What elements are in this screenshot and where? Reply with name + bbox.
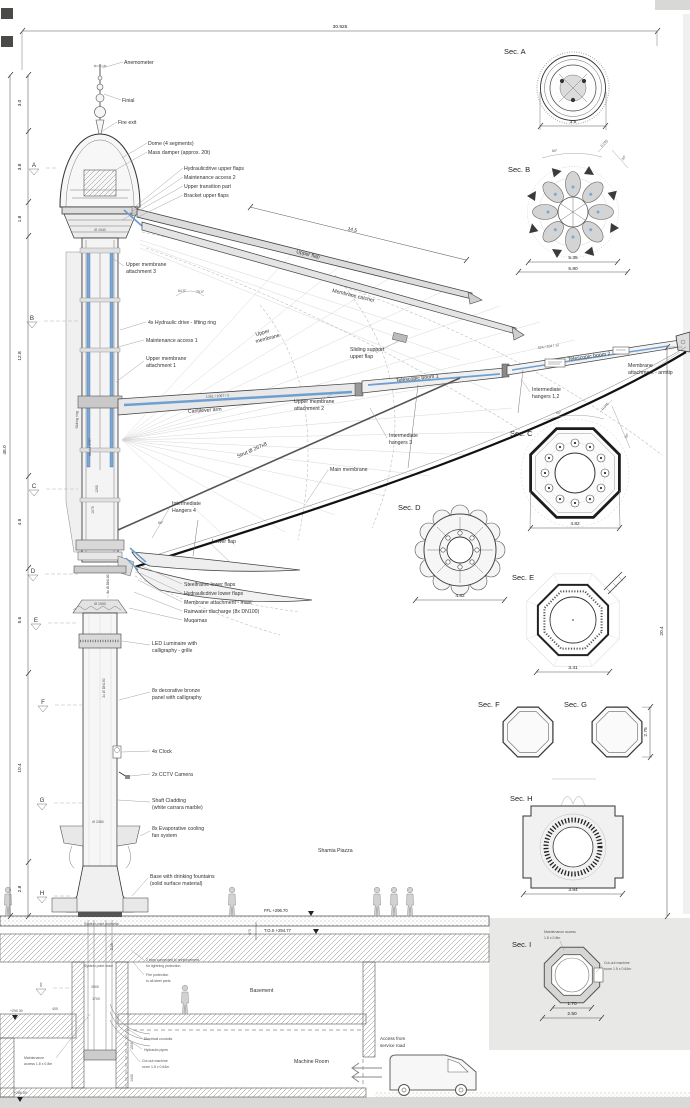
label-hangers-3a: Intermediate — [389, 433, 418, 439]
section-i-note2b: room 1.5 x 0.64m — [604, 967, 631, 971]
label-upper-transition: Upper transition part — [184, 184, 232, 190]
section-a-label: Sec. A — [504, 47, 526, 56]
label-hangers-3b: hangers 3 — [389, 440, 412, 446]
label-dn100: 8x Ø DN100 — [106, 574, 110, 593]
dim-seg-3: 12.8 — [17, 351, 23, 361]
sliding-ring-collar — [76, 540, 124, 550]
label-hangers-4b: Hangers 4 — [172, 508, 196, 514]
label-lightning-2: for lightning protection — [146, 964, 180, 968]
dim-seg-7: 2.8 — [17, 885, 23, 892]
label-angle-750: 75.0° — [196, 290, 205, 294]
label-1075: 1075 — [91, 506, 95, 514]
label-led-1: LED Luminaire with — [152, 641, 197, 647]
section-i-note1a: Maintenance access — [544, 930, 576, 934]
marker-f: F — [41, 699, 45, 706]
dim-1135: 1135 — [110, 943, 114, 951]
label-shamia-piazza: Shamia Piazza — [318, 848, 353, 854]
marker-d: D — [31, 568, 36, 575]
label-bronze-1: 8x decorative bronze — [152, 688, 200, 694]
label-dia-2380: Ø 2380 — [92, 820, 104, 824]
label-level-290: +290.30 — [10, 1009, 23, 1013]
label-cctv: 2x CCTV Camera — [152, 772, 193, 778]
lifting-ring — [78, 396, 122, 408]
dim-1700: 1700 — [92, 997, 100, 1001]
label-access-1: Access from — [380, 1036, 405, 1041]
label-anemometer: Anemometer — [124, 60, 154, 66]
label-electrical-conduits: Electrical conduits — [144, 1037, 172, 1041]
mass-damper — [84, 170, 116, 196]
dim-top: 30.925 — [333, 24, 348, 30]
label-cladding-2: (white carrara marble) — [152, 805, 203, 811]
label-bronze-2: panel with calligraphy — [152, 695, 202, 701]
label-hydraulic-drive: 4x Hydraulic drive - lifting ring — [148, 320, 216, 326]
dim-1440: 1440 — [130, 1074, 134, 1082]
section-e-dim: 3.41 — [568, 665, 578, 671]
section-b-angle60: 60° — [552, 149, 558, 153]
fountain-right — [123, 898, 148, 912]
van-icon — [390, 1055, 476, 1096]
section-e-label: Sec. E — [512, 573, 534, 582]
section-c-angle60: 60° — [556, 411, 562, 415]
label-hangers-12a: Intermediate — [532, 387, 561, 393]
label-fans-2: fan system — [152, 833, 177, 839]
label-lightning-1: 2 bars connected to reinforcement — [146, 958, 199, 962]
section-h-dim: 3.84 — [568, 887, 578, 893]
label-fire-1: Fire protection — [146, 973, 168, 977]
dim-left-total: 45.0 — [2, 445, 8, 455]
label-cutout-1: Cut-out machine — [142, 1059, 168, 1063]
marker-b: B — [30, 315, 34, 322]
label-ffl: FFL +296.70 — [264, 908, 288, 913]
section-g-label: Sec. G — [564, 700, 587, 709]
dim-seg-0: 3.0 — [17, 99, 23, 106]
section-c-dim: 4.82 — [570, 521, 580, 527]
label-sliding-ring: Sliding ring — [75, 411, 79, 428]
label-upper-mem-3a: Upper membrane — [126, 262, 166, 268]
label-hydraulic-pipes: Hydraulic pipes — [144, 1048, 168, 1052]
label-upper-mem-1a: Upper membrane — [146, 356, 186, 362]
label-cladding-1: Shaft Cladding — [152, 798, 186, 804]
section-i-label: Sec. I — [512, 940, 531, 949]
label-dn150: 2x Ø DN150 — [102, 678, 106, 697]
label-stroke: stroke 4797 — [88, 438, 92, 456]
label-dome: Dome (4 segments) — [148, 141, 194, 147]
section-g-dim: 2.75 — [643, 727, 649, 737]
section-f-label: Sec. F — [478, 700, 500, 709]
label-sliding-support-1: Sliding support — [350, 347, 385, 353]
dim-400: 400 — [52, 1007, 58, 1011]
section-d-label: Sec. D — [398, 503, 421, 512]
dim-seg-2: 1.8 — [17, 215, 23, 222]
hydraulic-cylinder-right — [110, 252, 113, 467]
umbrella-section-drawing: Anemometer Finial Fire exit Dome (4 segm… — [0, 0, 690, 1108]
label-sliding-support-2: upper flap — [350, 354, 373, 360]
label-upper-mem-3b: attachment 3 — [126, 269, 156, 275]
label-upper-mem-2b: attachment 2 — [294, 406, 324, 412]
section-i-note1b: 1.8 x 0.8m — [544, 936, 560, 940]
label-finial: Finial — [122, 98, 134, 104]
dim-right: 20.4 — [659, 626, 665, 636]
label-cutout-2: room 1.5 x 0.64m — [142, 1065, 169, 1069]
label-hangers-12b: hangers 1,2 — [532, 394, 560, 400]
label-tos: T.O.S +294.77 — [264, 928, 292, 933]
label-armtip-2: attachment - armtip — [628, 370, 673, 376]
label-basement: Basement — [250, 988, 274, 994]
drawing-page: Anemometer Finial Fire exit Dome (4 segm… — [0, 0, 690, 1108]
label-base-1: Base with drinking fountains — [150, 874, 215, 880]
label-1265: 1265 — [95, 485, 99, 493]
label-base-2: (solid surface material) — [150, 881, 203, 887]
label-angle-50: 50° — [158, 521, 164, 525]
label-system-point-umbrella: System point umbrella — [84, 922, 119, 926]
label-hyd-lower: Hydraulicdrive lower flaps — [184, 591, 244, 597]
section-i-dim2: 2.50 — [567, 1011, 577, 1017]
section-i-note2a: Cut-out machine — [604, 961, 630, 965]
marker-e: E — [34, 617, 38, 624]
label-maint-access-1: Maintenance — [24, 1056, 44, 1060]
section-i-dim1: 1.70 — [567, 1001, 577, 1007]
label-armtip-1: Membrane — [628, 363, 653, 369]
dim-875: 875 — [248, 929, 252, 935]
section-b-dim1: 5.35 — [568, 255, 578, 261]
section-d-dim: 4.82 — [455, 593, 465, 599]
label-mass-damper: Mass damper (approx. 20t) — [148, 150, 211, 156]
section-f — [503, 707, 553, 757]
label-fans-1: 8x Evaporative cooling — [152, 826, 204, 832]
label-steelframe: Steelframe lower flaps — [184, 582, 236, 588]
label-access-2: service road — [380, 1043, 405, 1048]
dim-2500: 2500 — [91, 985, 99, 989]
label-fire-exit: Fire exit — [118, 120, 137, 126]
label-dia-1900: Ø 1900 — [94, 602, 106, 606]
label-maintenance-2: Maintenance access 2 — [184, 175, 236, 181]
section-b-label: Sec. B — [508, 165, 530, 174]
marker-h: H — [40, 890, 44, 897]
label-hyd-upper-flaps: Hydraulicdrive upper flaps — [184, 166, 244, 172]
section-b-dim2: 5.80 — [568, 266, 578, 272]
clock — [113, 746, 121, 758]
dim-1500: 1500 — [130, 1042, 134, 1050]
label-fire-2: to all steel parts — [146, 979, 171, 983]
label-hangers-4a: Intermediate — [172, 501, 201, 507]
fountain-left — [52, 898, 77, 912]
label-bracket-upper-flaps: Bracket upper flaps — [184, 193, 229, 199]
label-mem-mast: Membrane attachment - mast — [184, 600, 252, 606]
label-led-2: calligraphy - grille — [152, 648, 192, 654]
dim-seg-5: 5.6 — [17, 616, 23, 623]
label-dia-1940: Ø 1940 — [94, 228, 106, 232]
label-main-membrane: Main membrane — [330, 467, 368, 473]
label-rainwater: Rainwater discharge (8x DN100) — [184, 609, 260, 615]
label-system-point-mast: System point mast — [84, 964, 113, 968]
marker-g: G — [40, 797, 45, 804]
label-upper-mem-1b: attachment 1 — [146, 363, 176, 369]
section-c-label: Sec. C — [510, 429, 533, 438]
section-h-label: Sec. H — [510, 794, 533, 803]
label-maint-access-2: access 1.8 x 0.8m — [24, 1062, 52, 1066]
dim-seg-4: 4.9 — [17, 518, 23, 525]
label-lower-flap: Lower flap — [212, 539, 236, 545]
label-maintenance-1: Maintenance access 1 — [146, 338, 198, 344]
label-angle-645: 64.5° — [178, 289, 187, 293]
label-upper-mem-2a: Upper membrane — [294, 399, 334, 405]
label-clock: 4x Clock — [152, 749, 172, 755]
section-a-dim: 3.5 — [570, 119, 577, 125]
label-level-286: +286.00 — [14, 1091, 27, 1095]
marker-c: C — [32, 483, 37, 490]
label-machine-room: Machine Room — [294, 1059, 329, 1065]
dim-seg-1: 3.8 — [17, 163, 23, 170]
label-muqarnas: Muqarnas — [184, 618, 207, 624]
hydraulic-cylinder-left — [87, 252, 90, 467]
marker-i: I — [40, 982, 42, 989]
dim-seg-6: 10.4 — [17, 763, 23, 773]
